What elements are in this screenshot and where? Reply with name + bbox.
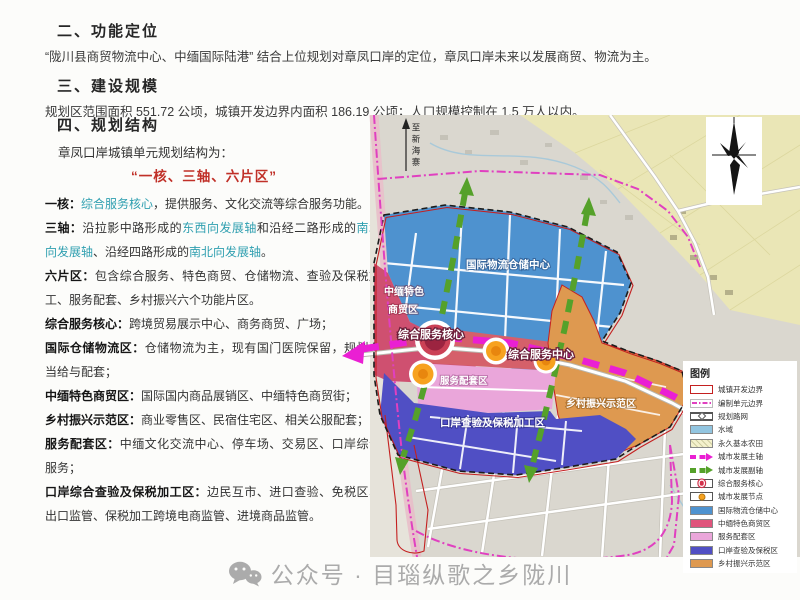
legend-swatch-service-zone <box>690 532 713 541</box>
zone-detail: 服务配套区：中缅文化交流中心、停车场、交易区、口岸综合服务； <box>45 432 381 480</box>
legend-item: 城市发展副轴 <box>690 463 793 476</box>
zone-3-label: 乡村振兴示范区： <box>45 413 141 427</box>
zone-detail: 中缅特色商贸区：国际国内商品展销区、中缅特色商贸街； <box>45 384 381 408</box>
map-legend: 图例 城镇开发边界 编制单元边界 规划路网 水域 永久基本农田 城市发展主轴 城… <box>683 361 797 573</box>
legend-item: 综合服务核心 <box>690 477 793 490</box>
item-one-core: 一核：综合服务核心，提供服务、文化交流等综合服务功能。 <box>45 192 381 216</box>
six-zones-label: 六片区： <box>45 269 95 283</box>
section2-body: “陇川县商贸物流中心、中缅国际陆港” 结合上位规划对章凤口岸的定位，章凤口岸未来… <box>45 48 761 66</box>
three-axes-label: 三轴： <box>45 221 82 235</box>
label-service: 服务配套区 <box>440 375 488 387</box>
label-center: 综合服务中心 <box>508 347 574 361</box>
legend-swatch-unit-boundary <box>690 399 713 408</box>
legend-item: 中缅特色商贸区 <box>690 517 793 530</box>
legend-item: 服务配套区 <box>690 530 793 543</box>
legend-item: 永久基本农田 <box>690 437 793 450</box>
zone-detail: 口岸综合查验及保税加工区：边民互市、进口查验、免税区、出口监管、保税加工跨境电商… <box>45 480 381 528</box>
legend-swatch-city-node <box>690 492 713 501</box>
legend-item: 城市发展节点 <box>690 490 793 503</box>
legend-swatch-service-core <box>690 479 713 488</box>
one-core-rest: ，提供服务、文化交流等综合服务功能。 <box>153 197 369 211</box>
wechat-icon <box>228 561 262 587</box>
six-zones-rest: 包含综合服务、特色商贸、仓储物流、查验及保税加工、服务配套、乡村振兴六个功能片区… <box>45 269 381 307</box>
legend-item: 国际物流仓储中心 <box>690 504 793 517</box>
section3-title: 三、建设规模 <box>57 75 761 96</box>
legend-item: 编制单元边界 <box>690 396 793 409</box>
legend-title: 图例 <box>690 365 793 380</box>
one-core-label: 一核： <box>45 197 81 211</box>
one-core-term: 综合服务核心 <box>81 197 153 211</box>
three-axes-t4: 。 <box>261 245 273 259</box>
label-customs: 口岸查验及保税加工区 <box>440 416 545 429</box>
three-axes-term3: 南北向发展轴 <box>189 245 261 259</box>
legend-swatch-water <box>690 425 713 434</box>
legend-item: 城镇开发边界 <box>690 383 793 396</box>
road-label-to-xinhaizhai: 至新海寨 <box>410 123 422 169</box>
zone-detail: 综合服务核心：跨境贸易展示中心、商务商贸、广场； <box>45 312 381 336</box>
compass <box>706 117 762 205</box>
legend-swatch-road-network <box>690 412 713 421</box>
watermark-text: 公众号 · 目瑙纵歌之乡陇川 <box>271 562 572 588</box>
item-six-zones: 六片区：包含综合服务、特色商贸、仓储物流、查验及保税加工、服务配套、乡村振兴六个… <box>45 264 381 312</box>
label-logistics: 国际物流仓储中心 <box>466 258 550 271</box>
zone-detail: 乡村振兴示范区：商业零售区、民宿住宅区、相关公服配套； <box>45 408 381 432</box>
city-node <box>483 338 510 365</box>
legend-swatch-farmland <box>690 439 713 448</box>
three-axes-t1: 沿拉影中路形成的 <box>82 221 182 235</box>
zone-2-rest: 国际国内商品展销区、中缅特色商贸街； <box>141 389 357 403</box>
zone-detail: 国际仓储物流区：仓储物流为主，现有国门医院保留，规划适当给与配套； <box>45 336 381 384</box>
label-commerce-1: 中缅特色 <box>384 285 424 298</box>
zone-2-label: 中缅特色商贸区： <box>45 389 141 403</box>
watermark: 公众号 · 目瑙纵歌之乡陇川 <box>0 556 800 590</box>
three-axes-term1: 东西向发展轴 <box>182 221 257 235</box>
label-rural: 乡村振兴示范区 <box>566 397 636 410</box>
main-axis-arrow-west <box>342 341 365 364</box>
legend-swatch-main-axis <box>690 452 713 461</box>
zone-0-rest: 跨境贸易展示中心、商务商贸、广场； <box>129 317 333 331</box>
legend-swatch-secondary-axis <box>690 466 713 475</box>
legend-item: 城市发展主轴 <box>690 450 793 463</box>
planning-document-page: 二、功能定位 “陇川县商贸物流中心、中缅国际陆港” 结合上位规划对章凤口岸的定位… <box>0 0 800 600</box>
legend-swatch-commerce <box>690 519 713 528</box>
label-core: 综合服务核心 <box>398 327 464 341</box>
zone-1-label: 国际仓储物流区： <box>45 341 145 355</box>
section4-title: 四、规划结构 <box>57 114 381 135</box>
planning-structure-column: 四、规划结构 章凤口岸城镇单元规划结构为： “一核、三轴、六片区” 一核：综合服… <box>45 114 381 528</box>
section4-intro: 章凤口岸城镇单元规划结构为： <box>58 142 381 161</box>
item-three-axes: 三轴：沿拉影中路形成的东西向发展轴和沿经二路形成的南北向发展轴、沿经四路形成的南… <box>45 216 381 264</box>
legend-swatch-dev-boundary <box>690 385 713 394</box>
three-axes-t3: 、沿经四路形成的 <box>93 245 189 259</box>
label-commerce-2: 商贸区 <box>388 303 418 316</box>
section2-title: 二、功能定位 <box>57 20 761 41</box>
zone-4-label: 服务配套区： <box>45 437 120 451</box>
legend-item: 规划路网 <box>690 410 793 423</box>
legend-swatch-customs <box>690 546 713 555</box>
legend-item: 水域 <box>690 423 793 436</box>
zone-0-label: 综合服务核心： <box>45 317 129 331</box>
zone-3-rest: 商业零售区、民宿住宅区、相关公服配套； <box>141 413 369 427</box>
zone-5-label: 口岸综合查验及保税加工区： <box>45 485 207 499</box>
city-node <box>409 360 437 388</box>
legend-swatch-logistics <box>690 506 713 515</box>
